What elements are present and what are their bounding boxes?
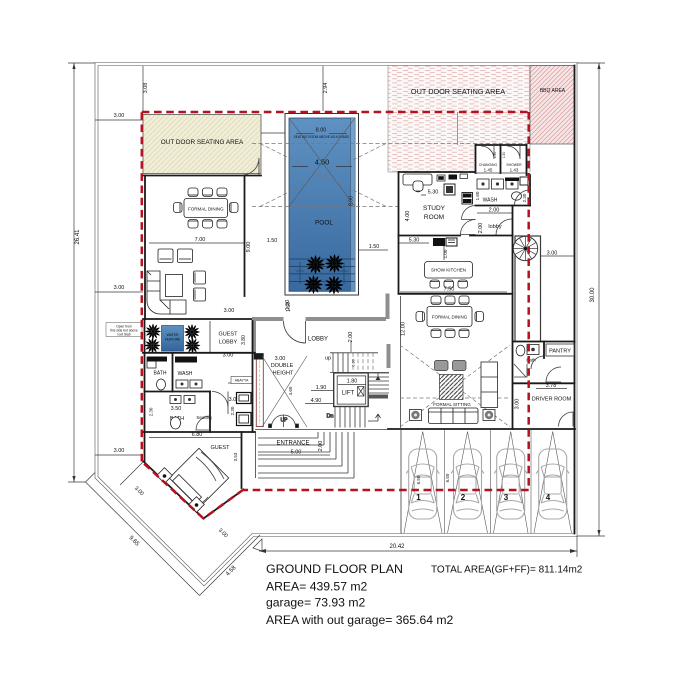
svg-text:up: up bbox=[325, 356, 331, 362]
svg-text:3.00: 3.00 bbox=[114, 113, 125, 119]
svg-text:1.50: 1.50 bbox=[493, 152, 497, 159]
svg-text:12.00: 12.00 bbox=[401, 322, 407, 336]
svg-text:SHOWER: SHOWER bbox=[506, 163, 522, 167]
svg-text:1.50: 1.50 bbox=[502, 152, 506, 159]
svg-text:2: 2 bbox=[461, 493, 466, 502]
svg-text:TOTAL AREA(GF+FF)= 811.14m2: TOTAL AREA(GF+FF)= 811.14m2 bbox=[431, 565, 583, 576]
svg-text:ABAYYA: ABAYYA bbox=[235, 379, 249, 383]
svg-text:DOUBLE: DOUBLE bbox=[271, 363, 294, 369]
svg-text:BATH: BATH bbox=[154, 371, 167, 377]
svg-text:1.60: 1.60 bbox=[475, 191, 480, 200]
svg-text:6.50: 6.50 bbox=[445, 473, 450, 482]
svg-text:3.80: 3.80 bbox=[241, 335, 247, 345]
svg-text:1.43: 1.43 bbox=[510, 168, 519, 173]
svg-text:ROOM: ROOM bbox=[424, 214, 444, 221]
svg-text:0.30: 0.30 bbox=[352, 359, 356, 366]
svg-text:1: 1 bbox=[416, 493, 421, 502]
svg-text:2.30: 2.30 bbox=[230, 406, 235, 415]
svg-text:WASH: WASH bbox=[178, 371, 193, 377]
svg-text:LOBBY: LOBBY bbox=[308, 337, 328, 343]
svg-text:UP: UP bbox=[281, 418, 289, 424]
svg-text:1.50: 1.50 bbox=[267, 238, 278, 244]
svg-text:2.00: 2.00 bbox=[489, 208, 500, 214]
svg-text:2.94: 2.94 bbox=[323, 83, 329, 94]
svg-text:OUT DOOR SEATING AREA: OUT DOOR SEATING AREA bbox=[161, 139, 244, 146]
svg-text:3.00: 3.00 bbox=[275, 356, 286, 362]
svg-text:3.00: 3.00 bbox=[224, 308, 235, 314]
svg-text:4: 4 bbox=[546, 493, 551, 502]
svg-text:6.50: 6.50 bbox=[416, 475, 421, 484]
svg-text:3.53: 3.53 bbox=[233, 452, 238, 461]
svg-text:8.00: 8.00 bbox=[316, 128, 327, 134]
svg-text:POOL: POOL bbox=[315, 220, 333, 227]
svg-text:1.90: 1.90 bbox=[316, 385, 327, 391]
svg-text:GROUND FLOOR PLAN: GROUND FLOOR PLAN bbox=[266, 562, 403, 576]
svg-text:Dn: Dn bbox=[326, 414, 333, 420]
svg-text:4.00: 4.00 bbox=[405, 211, 411, 222]
svg-text:roof Slab: roof Slab bbox=[117, 333, 130, 337]
svg-text:5.30: 5.30 bbox=[409, 238, 420, 244]
svg-text:SHOW KITCHEN: SHOW KITCHEN bbox=[431, 268, 466, 273]
svg-text:3.00: 3.00 bbox=[114, 448, 125, 454]
svg-text:3: 3 bbox=[504, 493, 509, 502]
svg-text:2.30: 2.30 bbox=[149, 407, 154, 416]
svg-text:PANTRY: PANTRY bbox=[549, 349, 571, 355]
svg-text:FORMAL DINING: FORMAL DINING bbox=[432, 315, 468, 320]
svg-text:4.60: 4.60 bbox=[288, 386, 293, 395]
svg-text:WASH: WASH bbox=[483, 198, 498, 204]
svg-text:1.50: 1.50 bbox=[369, 244, 380, 250]
svg-text:BBQ AREA: BBQ AREA bbox=[540, 88, 566, 94]
svg-text:GUEST: GUEST bbox=[211, 445, 231, 451]
svg-text:6.80: 6.80 bbox=[192, 432, 203, 438]
svg-text:3.50: 3.50 bbox=[171, 406, 182, 412]
svg-text:AREA= 439.57 m2: AREA= 439.57 m2 bbox=[266, 580, 368, 594]
svg-text:26.41: 26.41 bbox=[75, 229, 81, 245]
svg-text:AREA with out garage= 365.64 m: AREA with out garage= 365.64 m2 bbox=[266, 613, 454, 627]
svg-text:CHANGING: CHANGING bbox=[479, 163, 498, 167]
svg-text:3.00: 3.00 bbox=[114, 285, 125, 291]
svg-text:2.00: 2.00 bbox=[318, 441, 324, 452]
svg-text:1.45: 1.45 bbox=[484, 168, 493, 173]
svg-text:HEIGHT: HEIGHT bbox=[273, 371, 294, 377]
svg-text:STUDY: STUDY bbox=[423, 205, 446, 212]
svg-text:7.00: 7.00 bbox=[195, 237, 206, 243]
svg-text:FORMAL DINING: FORMAL DINING bbox=[188, 206, 224, 211]
svg-text:5.00: 5.00 bbox=[291, 450, 302, 456]
svg-text:Seating: Seating bbox=[196, 415, 212, 420]
svg-text:ENTRANCE: ENTRANCE bbox=[276, 441, 309, 447]
svg-text:3.08: 3.08 bbox=[143, 83, 149, 94]
svg-text:4.90: 4.90 bbox=[311, 398, 322, 404]
svg-text:2.00: 2.00 bbox=[348, 332, 354, 343]
svg-text:3.00: 3.00 bbox=[547, 251, 558, 257]
svg-text:2.00: 2.00 bbox=[478, 223, 484, 234]
svg-text:3.00: 3.00 bbox=[515, 399, 521, 410]
svg-text:DRIVER ROOM: DRIVER ROOM bbox=[532, 397, 572, 403]
svg-text:GUEST: GUEST bbox=[219, 332, 239, 338]
svg-text:LOBBY: LOBBY bbox=[219, 340, 238, 346]
svg-text:30.00: 30.00 bbox=[590, 287, 596, 303]
svg-text:WATER: WATER bbox=[167, 333, 179, 337]
svg-text:1.80: 1.80 bbox=[180, 357, 189, 362]
svg-text:1.50: 1.50 bbox=[286, 302, 292, 312]
svg-text:OUT DOOR SEATING AREA: OUT DOOR SEATING AREA bbox=[411, 87, 505, 96]
svg-text:9.00: 9.00 bbox=[246, 242, 252, 253]
svg-text:3.78: 3.78 bbox=[546, 383, 557, 389]
svg-text:FEATURE: FEATURE bbox=[165, 338, 181, 342]
svg-text:2.30: 2.30 bbox=[522, 193, 527, 202]
svg-text:5.30: 5.30 bbox=[428, 190, 439, 196]
svg-text:garage= 73.93 m2: garage= 73.93 m2 bbox=[266, 596, 365, 610]
svg-text:FORMAL SITTING: FORMAL SITTING bbox=[433, 402, 471, 407]
svg-text:7.50: 7.50 bbox=[444, 287, 455, 293]
svg-text:1.80: 1.80 bbox=[347, 379, 358, 385]
svg-text:LIFT: LIFT bbox=[342, 391, 355, 397]
svg-text:20.42: 20.42 bbox=[389, 544, 405, 550]
